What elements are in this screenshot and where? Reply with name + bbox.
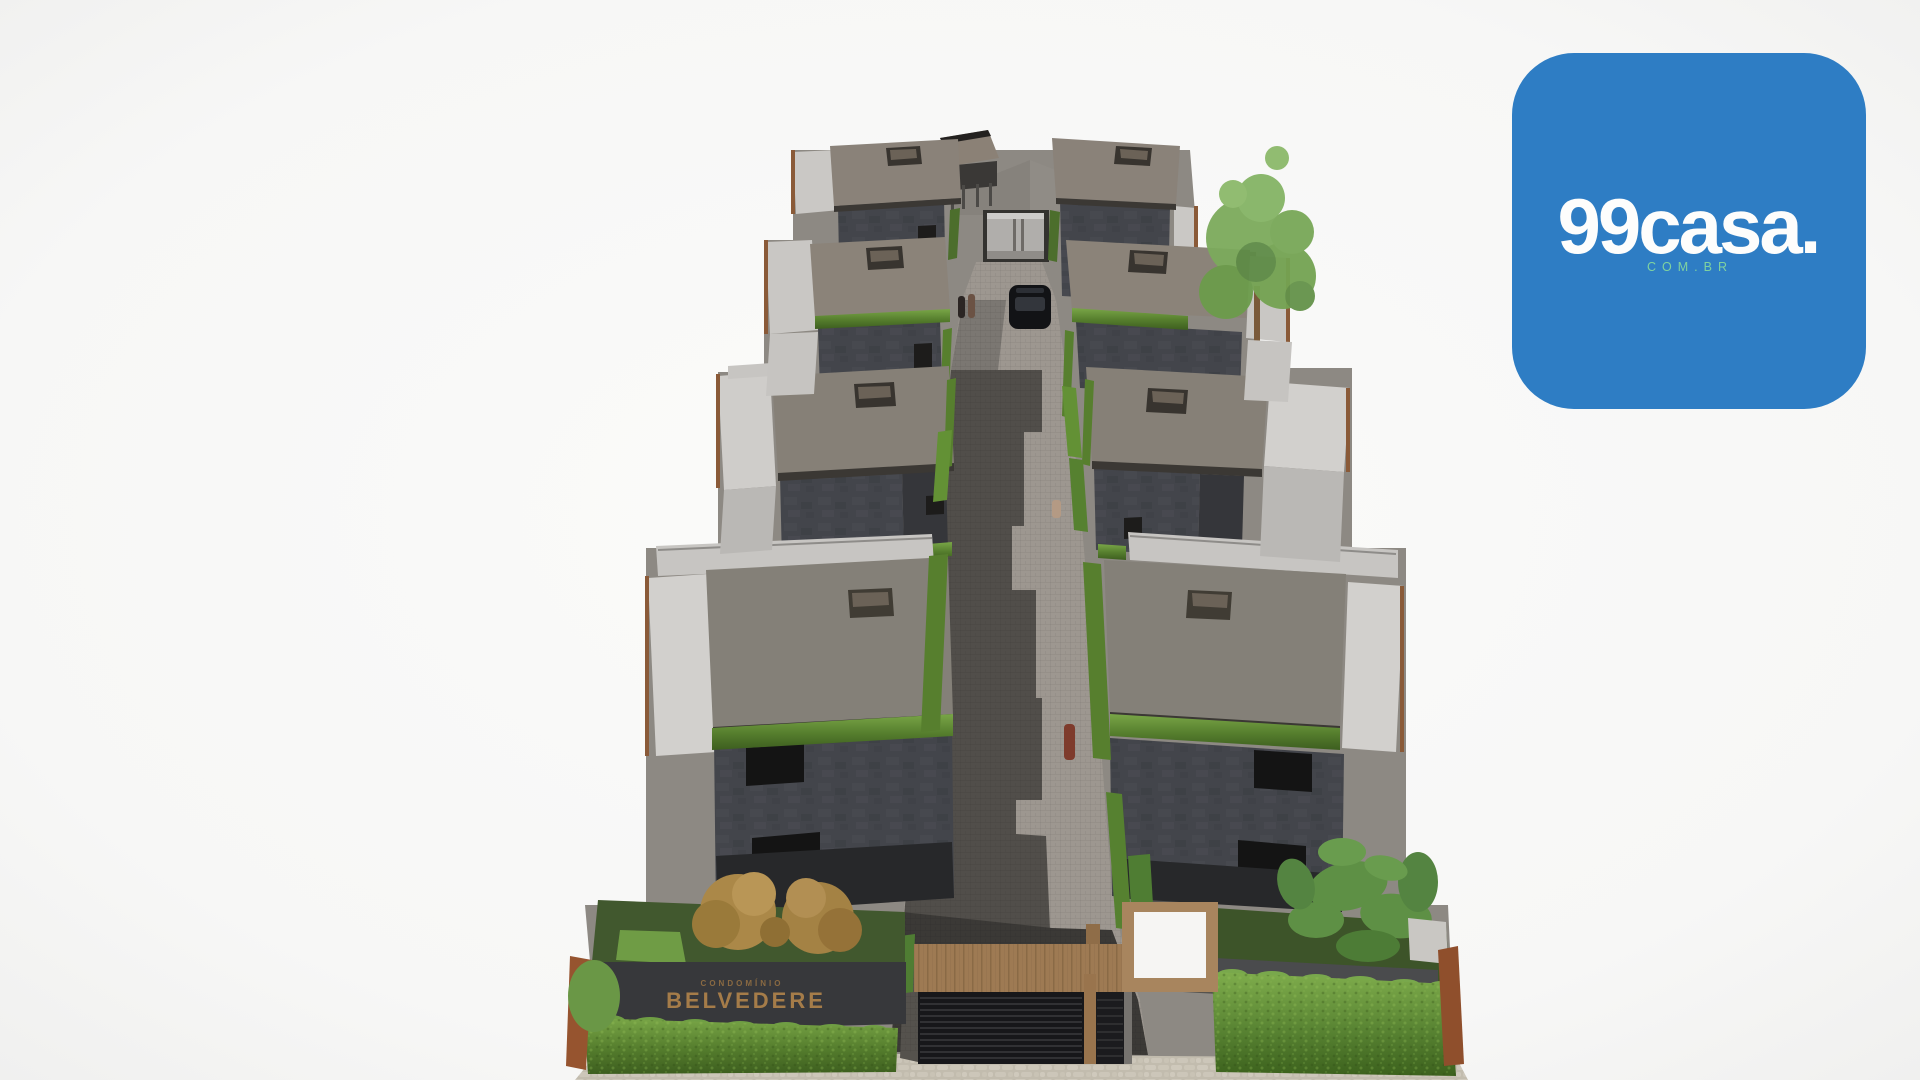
svg-text:99casa.: 99casa. bbox=[1558, 182, 1819, 270]
svg-text:COM.BR: COM.BR bbox=[1647, 260, 1733, 274]
svg-text:CONDOMÍNIO: CONDOMÍNIO bbox=[701, 979, 784, 988]
svg-text:BELVEDERE: BELVEDERE bbox=[666, 988, 826, 1013]
